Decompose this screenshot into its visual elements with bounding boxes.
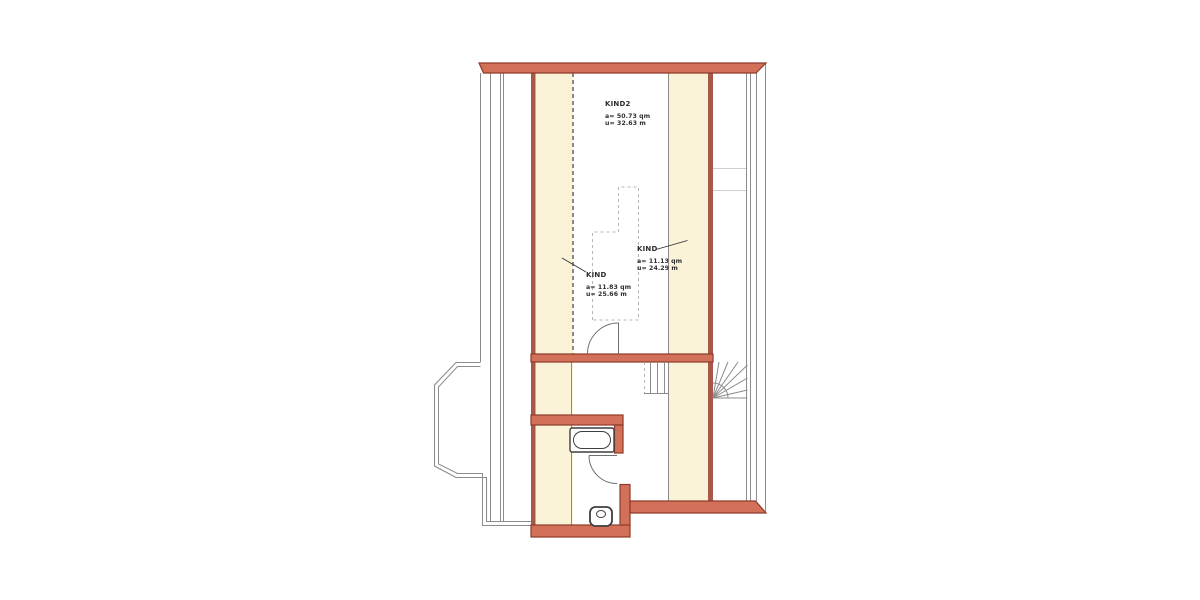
room-area: a= 11.83 qm: [586, 284, 631, 291]
knee-wall-border: [531, 73, 536, 525]
wall-bath-bottom: [531, 525, 630, 537]
winder-stairs: [713, 362, 748, 398]
room-area: a= 11.13 qm: [637, 258, 682, 265]
door-swing-arc: [589, 456, 617, 484]
wall-top: [479, 63, 766, 73]
door-room: [588, 323, 619, 355]
room-label-kind-left: KIND a= 11.83 qm u= 25.66 m: [586, 271, 631, 298]
wall-bath-top: [531, 415, 623, 425]
room-perimeter: u= 25.66 m: [586, 291, 627, 298]
headroom-zone-outline: [593, 187, 639, 320]
toilet-outline: [590, 507, 612, 526]
knee-wall-border: [708, 73, 713, 501]
roof-lines-right: [713, 64, 766, 513]
room-perimeter: u= 24.29 m: [637, 265, 678, 272]
straight-stairs: [644, 362, 668, 394]
bay-window-inner: [439, 367, 533, 526]
floor-plan-canvas: KIND2 a= 50.73 qm u= 32.63 m KIND a= 11.…: [0, 0, 1200, 600]
toilet: [590, 507, 612, 526]
wall-bath-stub: [615, 425, 624, 453]
bay-window-outer: [435, 363, 533, 522]
door-bath: [589, 456, 617, 484]
wall-bottom-right: [630, 501, 766, 513]
room-name: KIND2: [605, 100, 631, 108]
knee-wall-fill: [668, 73, 708, 501]
knee-wall-right: [668, 73, 713, 501]
bay-window: [435, 363, 533, 526]
knee-wall-left: [531, 73, 573, 525]
walls: [479, 63, 766, 537]
room-label-kind2: KIND2 a= 50.73 qm u= 32.63 m: [605, 100, 650, 127]
wall-divider: [531, 354, 713, 362]
bathtub: [570, 428, 614, 452]
room-area: a= 50.73 qm: [605, 113, 650, 120]
knee-wall-fill: [535, 73, 573, 525]
wall-step: [620, 485, 630, 526]
roof-lines-left: [481, 73, 504, 521]
room-name: KIND: [637, 245, 658, 253]
door-swing-arc: [588, 323, 619, 354]
room-perimeter: u= 32.63 m: [605, 120, 646, 127]
room-name: KIND: [586, 271, 607, 279]
